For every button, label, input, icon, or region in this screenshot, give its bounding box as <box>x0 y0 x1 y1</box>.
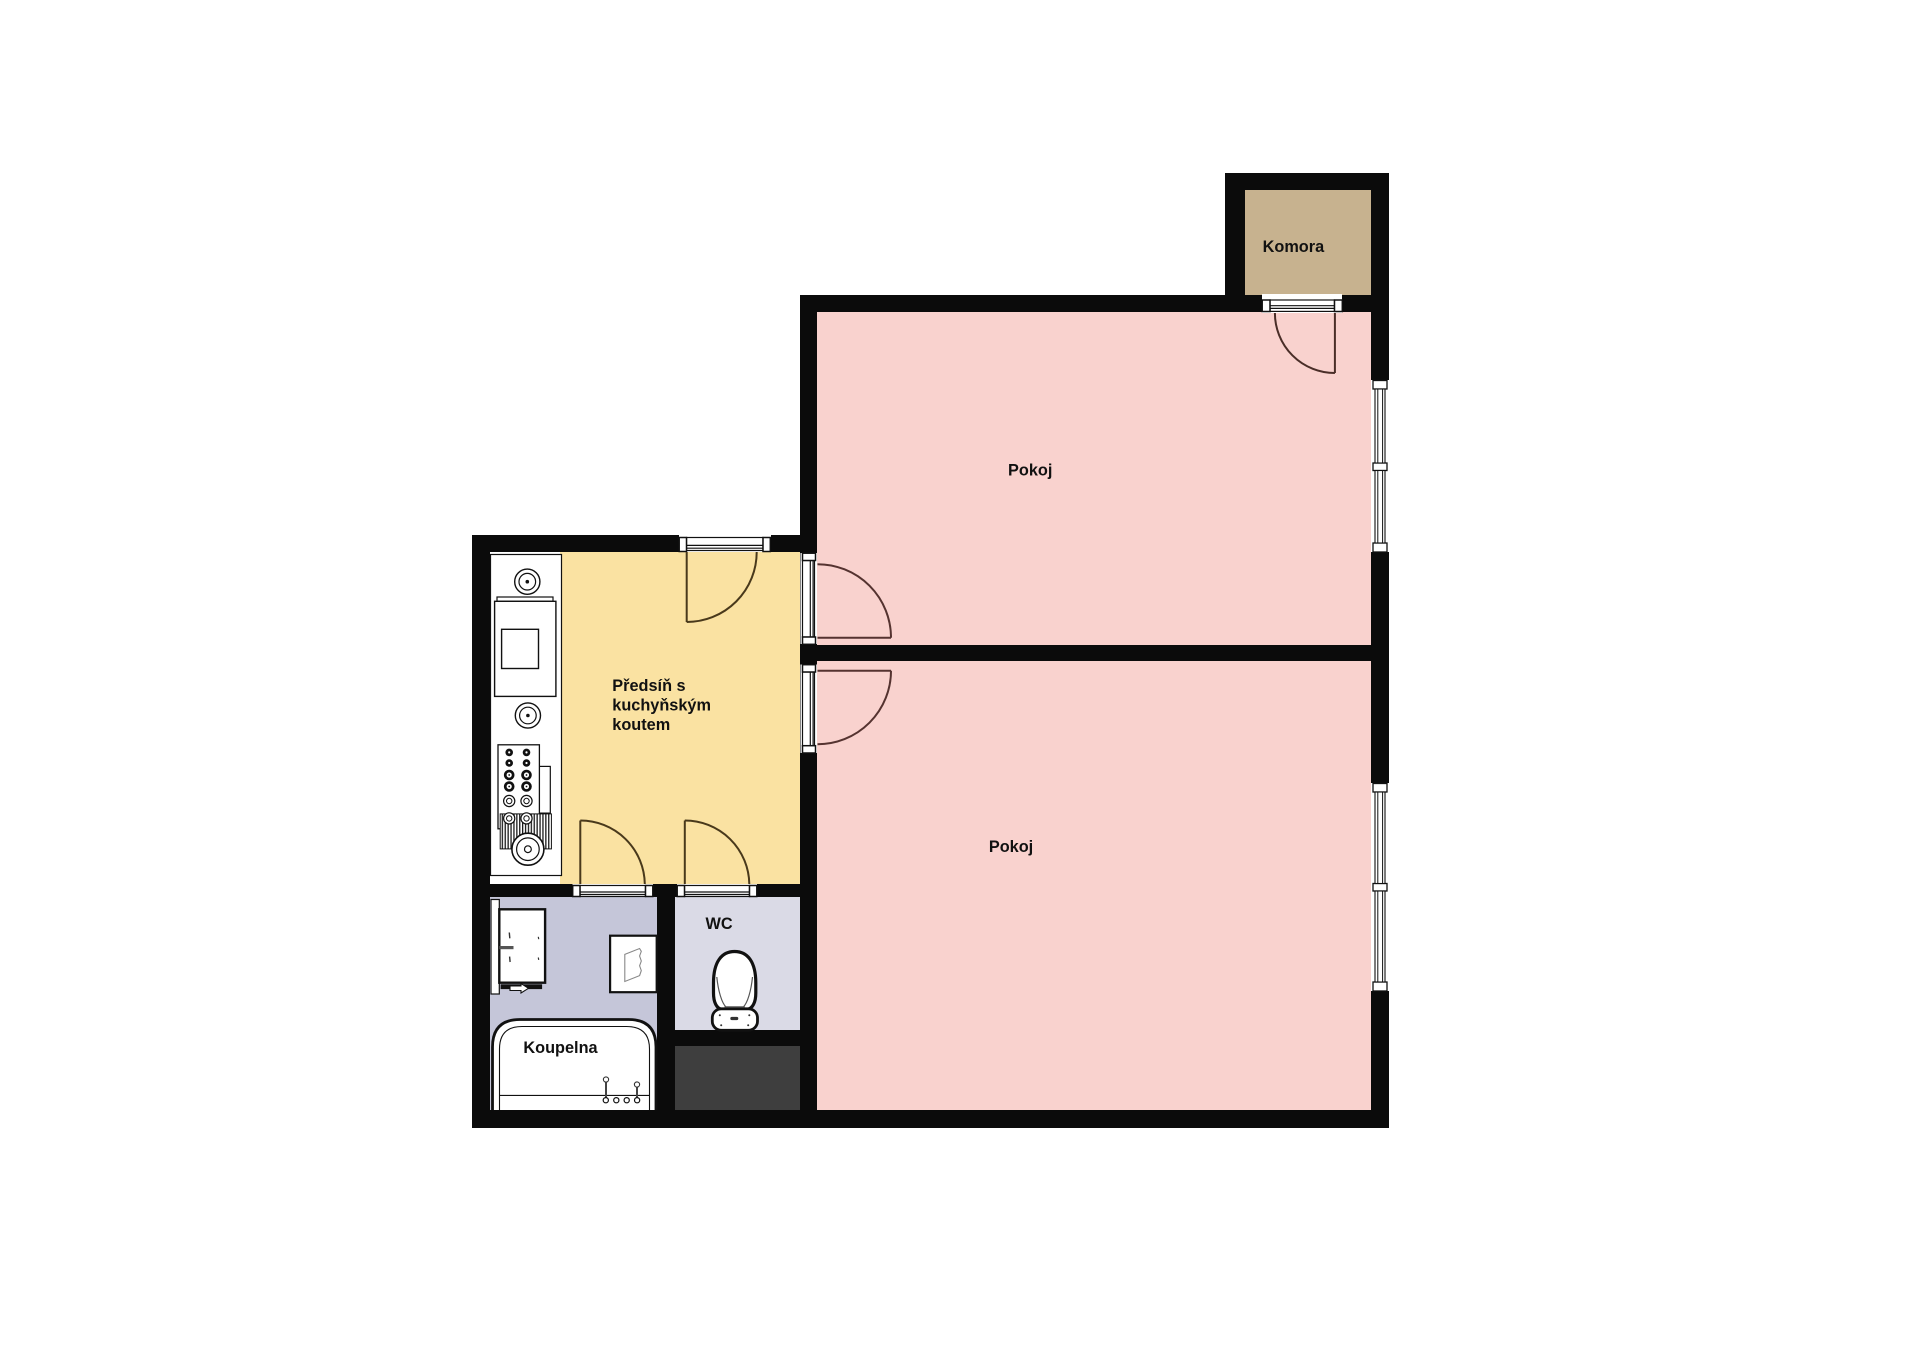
svg-text:koutem: koutem <box>612 716 670 734</box>
svg-text:Koupelna: Koupelna <box>523 1039 598 1057</box>
svg-text:Komora: Komora <box>1263 238 1325 256</box>
svg-text:kuchyňským: kuchyňským <box>612 697 711 715</box>
svg-text:Předsíň s: Předsíň s <box>612 677 685 695</box>
svg-text:Pokoj: Pokoj <box>989 838 1033 856</box>
svg-text:WC: WC <box>706 915 733 933</box>
svg-text:Pokoj: Pokoj <box>1008 462 1052 480</box>
